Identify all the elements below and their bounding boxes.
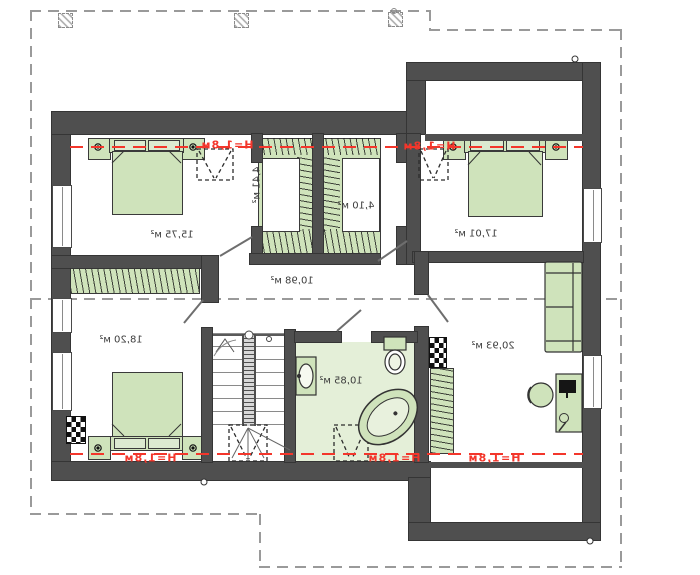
- room-label-hallway: 10,98 м²: [270, 276, 313, 287]
- roof-outline-step: [429, 10, 431, 31]
- wall-closet-east-stub: [397, 227, 407, 264]
- room-label-room-bottom-right: 20,93 м²: [471, 341, 514, 352]
- room-label-bedroom-top-left: 15,75 м²: [150, 230, 193, 241]
- roof-outline-top: [30, 10, 431, 12]
- room-label-closet-right: 4,10 м²: [338, 201, 375, 212]
- pillow: [148, 438, 180, 449]
- wall-stair-east: [285, 330, 295, 462]
- ridge-line: [30, 298, 622, 300]
- wall-right: [583, 63, 600, 540]
- wall-bathroom-north: [295, 332, 341, 342]
- wall-closet-west-stub: [252, 134, 262, 162]
- closet-left-shelf-bottom: [258, 229, 315, 254]
- bed-mattress: [468, 151, 543, 217]
- wall-bedroom1-south: [52, 256, 218, 268]
- closet-right-shelf-bottom: [322, 229, 379, 254]
- floor-plan: 15,75 м² 4,41 м² 4,10 м² 17,01 м² 10,98 …: [0, 0, 700, 575]
- roof-outline-bottom-left: [30, 513, 261, 515]
- wall-cabinet-entry: [415, 252, 428, 294]
- roof-vent-icon: [234, 13, 249, 28]
- bathroom-floor: [295, 342, 415, 462]
- wall-stair-west: [202, 328, 212, 462]
- closet-right-shelf-side: [322, 155, 340, 231]
- desk: [556, 374, 582, 432]
- stair-center-rail: [242, 334, 256, 426]
- wall-bedroom3-chunk: [202, 256, 218, 302]
- closet-right-floor: [342, 158, 380, 232]
- wall-bedroom2-west: [407, 134, 420, 264]
- window-bedroom3-left-2: [52, 352, 72, 411]
- desk-lamp-icon: [560, 414, 569, 423]
- room-label-bedroom-top-right: 17,01 м²: [454, 229, 497, 240]
- closet-left-floor: [262, 158, 300, 232]
- monitor-icon: [559, 380, 576, 393]
- height-mark: H=1,8м: [468, 452, 521, 465]
- roof-outline-left: [30, 10, 32, 515]
- roof-outline-step-bottom: [259, 514, 261, 568]
- wall-bathroom-north: [372, 332, 417, 342]
- window-bedroom3-left-1: [52, 298, 72, 333]
- wall-bathroom-east: [415, 327, 428, 462]
- height-mark: H=1,8м: [403, 140, 456, 153]
- wall-bottom-right: [409, 523, 600, 540]
- wall-closet-middle: [313, 134, 323, 254]
- wall-bottom: [52, 462, 430, 480]
- wardrobe-bedroom-bottom-left: [70, 268, 200, 294]
- roof-outline-bottom-right: [259, 566, 622, 568]
- vent-shaft-cabinet: [429, 337, 447, 368]
- nightstand: [545, 138, 568, 160]
- bed-mattress: [112, 151, 183, 215]
- height-mark: H=1,8м: [124, 452, 177, 465]
- window-bedroom1-left: [52, 185, 72, 248]
- height-mark: H=1,8м: [201, 139, 254, 152]
- wall-closet-south: [250, 254, 380, 264]
- roof-vent-icon: [388, 12, 403, 27]
- wall-dormer-top: [407, 63, 600, 80]
- nightstand: [88, 138, 111, 160]
- height-mark: H=1,8м: [368, 452, 421, 465]
- vent-shaft-bedroom3: [66, 416, 86, 444]
- window-cabinet-right: [583, 355, 602, 409]
- wardrobe-room-bottom-right: [430, 368, 454, 454]
- wall-top: [52, 112, 417, 134]
- height-line-top: [70, 146, 583, 148]
- window-bedroom2-right: [583, 188, 602, 243]
- room-label-closet-left: 4,41 м²: [252, 167, 263, 204]
- room-label-bedroom-bottom-left: 18,20 м²: [99, 335, 142, 346]
- wall-bedroom2-south: [413, 252, 583, 262]
- bed-mattress: [112, 372, 183, 438]
- sofa: [545, 262, 582, 352]
- roof-outline-top-right: [429, 29, 622, 31]
- roof-vent-icon: [58, 13, 73, 28]
- pillow: [114, 438, 146, 449]
- desk-chair: [528, 383, 553, 407]
- room-label-bathroom: 10,85 м²: [319, 376, 362, 387]
- nightstand: [88, 436, 111, 460]
